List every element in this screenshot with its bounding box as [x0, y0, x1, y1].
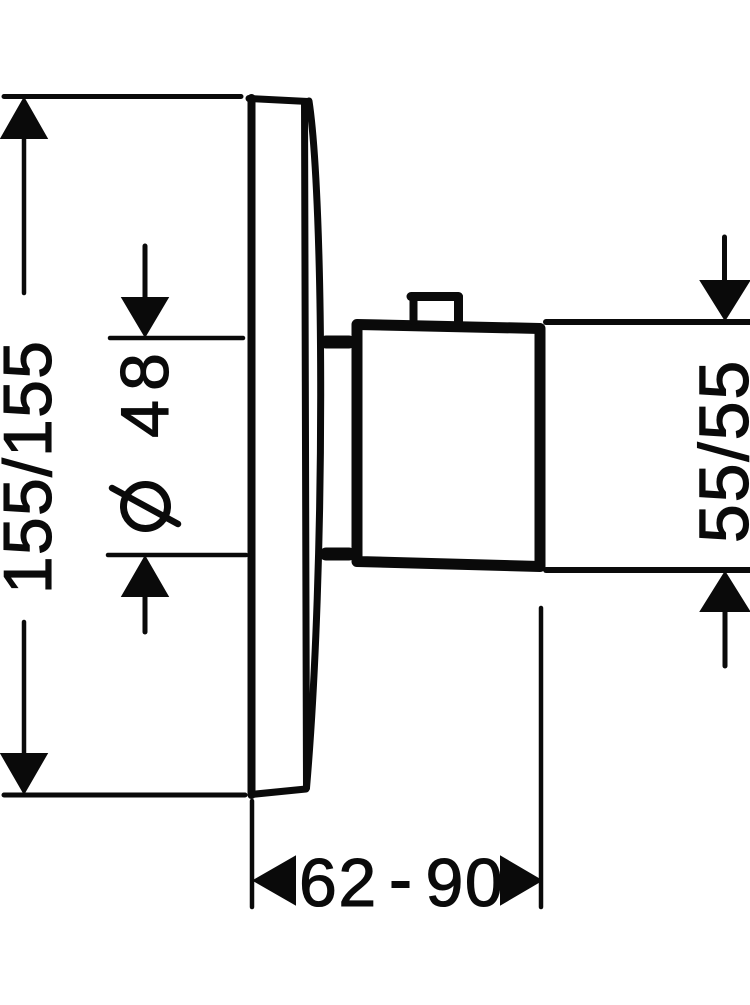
svg-text:155/155: 155/155: [0, 340, 66, 594]
svg-text:4: 4: [107, 400, 183, 438]
svg-text:62: 62: [299, 845, 378, 921]
svg-text:90: 90: [426, 845, 505, 921]
svg-text:55/55: 55/55: [685, 359, 750, 543]
svg-text:8: 8: [107, 353, 183, 391]
